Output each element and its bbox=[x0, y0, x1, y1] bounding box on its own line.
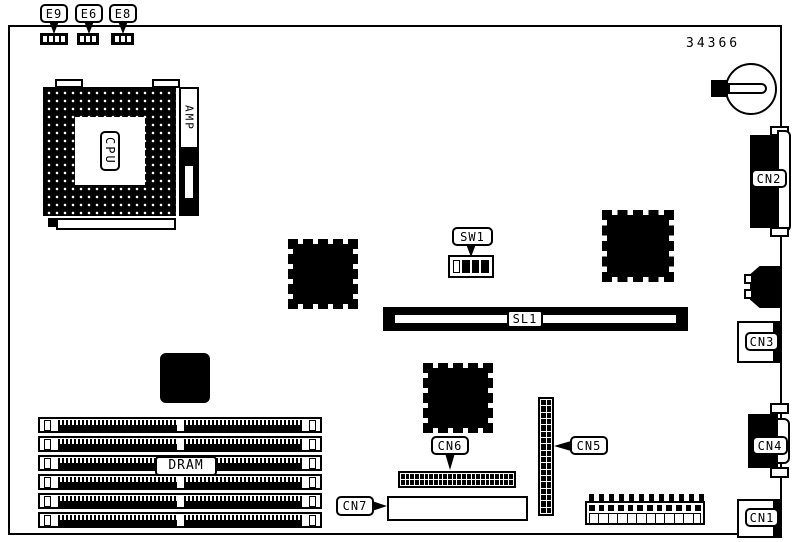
slot-clip-icon bbox=[44, 458, 51, 469]
simm-slot-6 bbox=[38, 512, 322, 528]
slot-clip-icon bbox=[44, 515, 51, 526]
cn5-pointer-arrow bbox=[554, 441, 571, 451]
chip-qfp-1 bbox=[288, 239, 358, 309]
power-connector bbox=[585, 501, 705, 525]
connector-cn7 bbox=[387, 496, 528, 521]
amp-label: AMP bbox=[181, 89, 197, 147]
slot-clip-icon bbox=[44, 439, 51, 450]
connector-label-cn4: CN4 bbox=[752, 436, 788, 455]
cpu-socket-center: CPU bbox=[75, 117, 145, 185]
slot-clip-icon bbox=[44, 496, 51, 507]
slot-clip-icon bbox=[44, 477, 51, 488]
cpu-label: CPU bbox=[100, 131, 120, 171]
slot-clip-icon bbox=[309, 496, 316, 507]
slot-clip-icon bbox=[309, 439, 316, 450]
connector-label-cn3: CN3 bbox=[745, 332, 779, 351]
chip-qfp-3 bbox=[423, 363, 493, 433]
connector-label-cn7: CN7 bbox=[336, 496, 374, 516]
slot-label-sl1: SL1 bbox=[507, 310, 543, 328]
simm-slot-2 bbox=[38, 436, 322, 452]
cn4-mount-tab-top bbox=[770, 403, 789, 414]
jumper-label-e6: E6 bbox=[75, 4, 103, 23]
dip-switch-sw1 bbox=[448, 255, 494, 278]
chip-plain bbox=[160, 353, 210, 403]
connector-cn5 bbox=[538, 397, 554, 516]
din-connector-pin-bottom bbox=[744, 289, 753, 299]
slot-clip-icon bbox=[44, 420, 51, 431]
connector-label-cn6: CN6 bbox=[431, 436, 469, 455]
cpu-socket: CPU bbox=[43, 87, 176, 216]
simm-slot-1 bbox=[38, 417, 322, 433]
connector-label-cn1: CN1 bbox=[745, 508, 779, 527]
cn2-mount-tab-bottom bbox=[770, 227, 789, 237]
battery-plug-pin bbox=[728, 83, 767, 94]
din-connector bbox=[750, 266, 782, 308]
simm-slot-5 bbox=[38, 493, 322, 509]
slot-clip-icon bbox=[309, 420, 316, 431]
cn4-mount-tab-bottom bbox=[770, 467, 789, 478]
jumper-block-e9 bbox=[40, 33, 68, 45]
jumper-label-e9: E9 bbox=[40, 4, 68, 23]
amp-bracket: AMP bbox=[179, 87, 199, 216]
cn6-pointer-arrow bbox=[445, 453, 455, 470]
part-number: 34366 bbox=[686, 36, 740, 51]
jumper-label-e8: E8 bbox=[109, 4, 137, 23]
connector-label-cn2: CN2 bbox=[751, 169, 787, 188]
slot-clip-icon bbox=[309, 458, 316, 469]
switch-label-sw1: SW1 bbox=[452, 227, 493, 246]
dram-label: DRAM bbox=[155, 456, 217, 476]
din-connector-pin-top bbox=[744, 274, 753, 284]
socket-lever-bar bbox=[56, 218, 176, 230]
jumper-block-e8 bbox=[111, 33, 134, 45]
connector-label-cn5: CN5 bbox=[570, 436, 608, 455]
slot-clip-icon bbox=[309, 515, 316, 526]
connector-cn6 bbox=[398, 471, 516, 488]
cn7-pointer-arrow bbox=[372, 501, 387, 511]
simm-slot-4 bbox=[38, 474, 322, 490]
slot-clip-icon bbox=[309, 477, 316, 488]
battery-plug-base bbox=[711, 80, 728, 97]
motherboard-diagram: E9 E6 E8 34366 CPU AMP SW1 SL1 bbox=[0, 0, 798, 542]
amp-bracket-window bbox=[184, 165, 194, 199]
chip-qfp-2 bbox=[602, 210, 674, 282]
jumper-block-e6 bbox=[77, 33, 99, 45]
